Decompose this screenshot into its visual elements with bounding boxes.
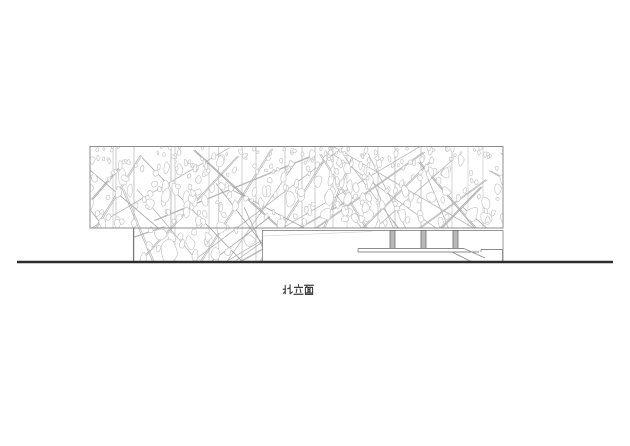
label-char [305, 285, 314, 294]
drawing-label-glyphs [283, 285, 313, 295]
label-char [294, 285, 303, 295]
north-elevation-drawing [0, 0, 630, 446]
label-char [283, 285, 292, 294]
architectural-drawing-canvas: 北立面 [0, 0, 630, 446]
facade-pattern [0, 144, 630, 446]
